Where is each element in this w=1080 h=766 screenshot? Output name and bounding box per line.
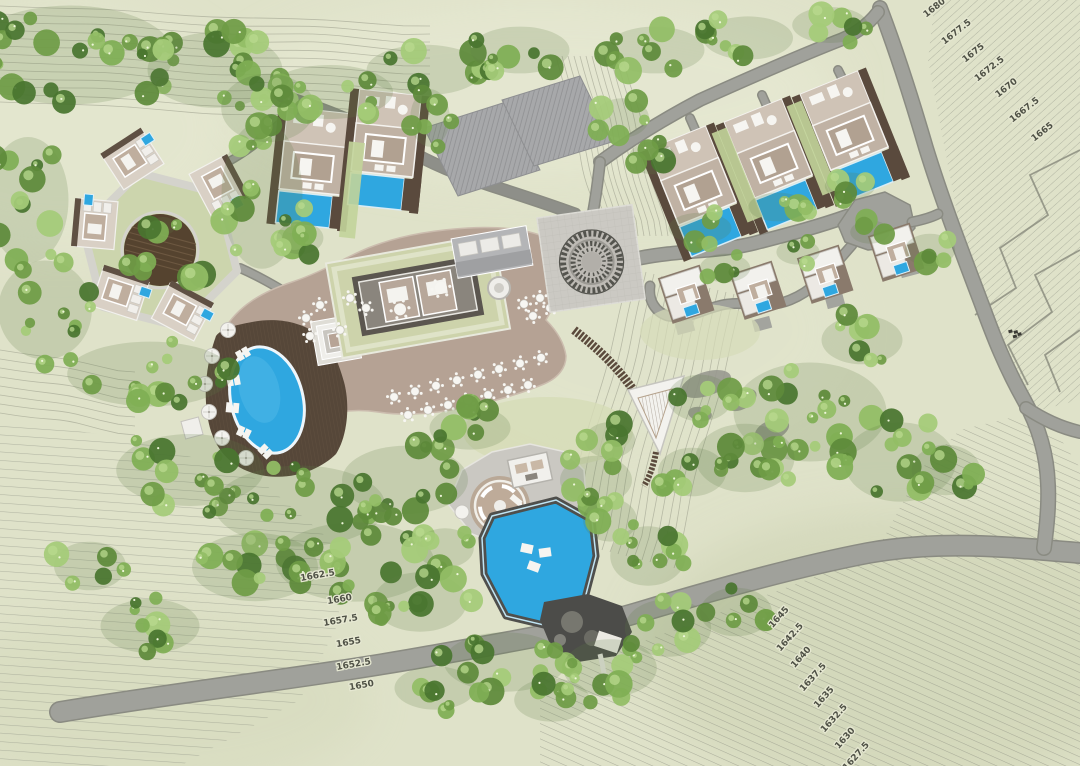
- tree: [203, 505, 217, 519]
- chair: [522, 379, 525, 382]
- dining-table: [424, 406, 432, 414]
- tree: [130, 597, 142, 609]
- tree-highlight: [657, 595, 663, 601]
- tree: [717, 433, 745, 461]
- tree: [655, 593, 672, 610]
- tree-speckle: [72, 361, 74, 363]
- tree: [681, 453, 699, 471]
- tree-highlight: [901, 458, 911, 468]
- tree-speckle: [843, 191, 845, 193]
- tree: [326, 506, 353, 533]
- chair: [310, 313, 313, 316]
- tree: [330, 537, 351, 558]
- tree: [642, 42, 661, 61]
- tree: [649, 16, 675, 42]
- tree: [299, 232, 309, 242]
- tree: [606, 410, 633, 437]
- chair: [517, 306, 520, 309]
- tree: [628, 519, 639, 530]
- tree-highlight: [599, 499, 605, 505]
- tree-highlight: [141, 219, 150, 228]
- tree-speckle: [82, 49, 84, 51]
- tree-speckle: [309, 105, 311, 107]
- chair: [310, 320, 313, 323]
- chair: [514, 367, 517, 370]
- tree-speckle: [251, 499, 253, 501]
- tree-highlight: [852, 344, 860, 352]
- tree-highlight: [103, 44, 113, 54]
- tree-speckle: [195, 383, 197, 385]
- tree: [809, 23, 829, 43]
- tree: [652, 553, 667, 568]
- tree-highlight: [87, 303, 91, 307]
- tree-speckle: [260, 101, 262, 103]
- tree-highlight: [941, 234, 948, 241]
- tree-speckle: [60, 98, 62, 100]
- tree-speckle: [146, 456, 148, 458]
- dining-table: [504, 386, 512, 394]
- tree-highlight: [571, 675, 575, 679]
- chair: [535, 309, 538, 312]
- tree-speckle: [34, 164, 36, 166]
- tree-speckle: [447, 116, 449, 118]
- tree-speckle: [435, 693, 437, 695]
- tree-highlight: [298, 202, 305, 209]
- service-room: [458, 241, 478, 257]
- tree: [43, 82, 58, 97]
- villa-bed-roof: [363, 134, 405, 164]
- chair: [493, 363, 496, 366]
- dining-table: [336, 326, 344, 334]
- tree: [700, 381, 715, 396]
- chair: [513, 391, 516, 394]
- tree-highlight: [292, 564, 300, 572]
- tree: [658, 526, 678, 546]
- tree-highlight: [433, 142, 439, 148]
- tree: [652, 643, 665, 656]
- tree: [246, 140, 257, 151]
- chair: [358, 308, 361, 311]
- tree: [294, 81, 306, 93]
- tree: [844, 17, 862, 35]
- tree-speckle: [200, 557, 202, 559]
- tree: [938, 231, 956, 249]
- chair: [420, 392, 423, 395]
- tree-highlight: [655, 477, 664, 486]
- tree-speckle: [165, 504, 167, 506]
- tree: [95, 568, 112, 585]
- tree-highlight: [409, 436, 419, 446]
- tree-highlight: [813, 6, 823, 16]
- tree-speckle: [341, 496, 343, 498]
- tree-speckle: [677, 484, 679, 486]
- tree: [588, 119, 609, 140]
- tree-highlight: [300, 233, 304, 237]
- tree: [296, 468, 310, 482]
- tree-speckle: [866, 30, 868, 32]
- tree-speckle: [824, 412, 826, 414]
- tree: [773, 436, 785, 448]
- tree-speckle: [133, 599, 135, 601]
- tree: [623, 635, 640, 652]
- chair: [425, 402, 428, 405]
- tree: [561, 478, 585, 502]
- tree-highlight: [698, 23, 705, 30]
- tree: [358, 102, 376, 120]
- tree: [140, 482, 164, 506]
- dining-table: [536, 294, 544, 302]
- tree-highlight: [866, 355, 871, 360]
- tree-speckle: [252, 146, 254, 148]
- tree-highlight: [654, 645, 659, 650]
- tree-speckle: [785, 198, 787, 200]
- tree-highlight: [250, 117, 260, 127]
- tree-highlight: [70, 327, 75, 332]
- tree-highlight: [372, 605, 381, 614]
- tree: [583, 695, 597, 709]
- villa-bed: [299, 158, 313, 176]
- tree-highlight: [800, 202, 806, 208]
- tree: [470, 640, 494, 664]
- tree: [242, 180, 259, 197]
- tree-highlight: [8, 24, 15, 31]
- tree: [627, 555, 639, 567]
- tree-speckle: [600, 505, 602, 507]
- tree: [787, 240, 800, 253]
- chair: [403, 419, 406, 422]
- chair: [347, 290, 350, 293]
- tree-speckle: [660, 646, 662, 648]
- tree-speckle: [677, 606, 679, 608]
- tree-speckle: [239, 31, 241, 33]
- tree-highlight: [299, 470, 305, 476]
- tree: [798, 200, 813, 215]
- tree: [911, 471, 934, 494]
- chair: [417, 385, 420, 388]
- chair: [323, 308, 326, 311]
- tree-speckle: [227, 208, 229, 210]
- arrival-plaza: [537, 205, 645, 312]
- tree-speckle: [496, 673, 498, 675]
- chair: [506, 395, 509, 398]
- tree: [834, 181, 857, 204]
- tree-speckle: [821, 396, 823, 398]
- chair: [371, 309, 374, 312]
- tree-speckle: [570, 454, 572, 456]
- chair: [308, 328, 311, 331]
- tree: [444, 700, 455, 711]
- tree-highlight: [725, 396, 732, 403]
- tree-highlight: [463, 593, 472, 602]
- tree-highlight: [610, 415, 620, 425]
- tree: [162, 354, 173, 365]
- lounger: [233, 403, 240, 413]
- tree-speckle: [844, 403, 846, 405]
- tree: [416, 489, 431, 504]
- tree: [122, 34, 138, 50]
- dining-table: [537, 354, 545, 362]
- tree: [383, 51, 397, 65]
- tree: [781, 471, 796, 486]
- tree: [921, 249, 936, 264]
- tree-speckle: [88, 308, 90, 310]
- tree-highlight: [361, 502, 366, 507]
- tree: [610, 32, 623, 45]
- tree: [779, 196, 790, 207]
- tree: [701, 236, 717, 252]
- tree-speckle: [596, 519, 598, 521]
- tree-highlight: [859, 175, 866, 182]
- tree-highlight: [411, 76, 419, 84]
- tree-speckle: [221, 218, 223, 220]
- villa-bed: [371, 140, 385, 158]
- tree-speckle: [41, 360, 43, 362]
- tree: [230, 244, 242, 256]
- tree: [358, 71, 376, 89]
- tree-speckle: [846, 12, 848, 14]
- tree-speckle: [811, 415, 813, 417]
- tree: [5, 21, 24, 40]
- chair: [482, 376, 485, 379]
- tree-speckle: [803, 265, 805, 267]
- tree-speckle: [735, 618, 737, 620]
- dining-table: [516, 359, 524, 367]
- tree-speckle: [411, 543, 413, 545]
- tree-highlight: [100, 550, 108, 558]
- tree-highlight: [609, 54, 616, 61]
- tree: [146, 361, 158, 373]
- tree-speckle: [413, 438, 415, 440]
- tree-speckle: [329, 555, 331, 557]
- tree-speckle: [470, 76, 472, 78]
- chair: [305, 340, 308, 343]
- chair: [368, 301, 371, 304]
- tree-speckle: [562, 698, 564, 700]
- tree-highlight: [471, 637, 475, 641]
- tree-highlight: [56, 94, 65, 103]
- tree-speckle: [290, 515, 292, 517]
- chair: [315, 332, 318, 335]
- tree-speckle: [456, 573, 458, 575]
- tree-speckle: [440, 495, 442, 497]
- chair: [521, 386, 524, 389]
- tree-speckle: [412, 127, 414, 129]
- chair: [344, 325, 347, 328]
- tree-speckle: [13, 25, 15, 27]
- tree: [245, 112, 272, 139]
- tree: [79, 282, 99, 302]
- chair: [302, 323, 305, 326]
- tree: [424, 681, 444, 701]
- tree: [440, 565, 467, 592]
- tree: [97, 547, 117, 567]
- tree-speckle: [595, 102, 597, 104]
- tree: [538, 54, 564, 80]
- tree: [440, 459, 460, 479]
- tree-highlight: [789, 199, 800, 210]
- tree: [843, 35, 858, 50]
- tree: [528, 47, 540, 59]
- chair: [504, 368, 507, 371]
- chair: [400, 412, 403, 415]
- tree-highlight: [763, 380, 773, 390]
- chair: [533, 385, 536, 388]
- tree-speckle: [840, 432, 842, 434]
- tree: [196, 552, 208, 564]
- tree-highlight: [878, 356, 882, 360]
- tree-speckle: [713, 221, 715, 223]
- chair: [398, 400, 401, 403]
- dining-table: [411, 387, 419, 395]
- chair: [406, 407, 409, 410]
- tree-highlight: [896, 431, 903, 438]
- site-plan-svg: 16801677.516751672.516701667.516651662.5…: [0, 0, 1080, 766]
- tree: [664, 59, 682, 77]
- tree: [759, 376, 785, 402]
- villa-lounger: [314, 183, 324, 190]
- tree-highlight: [144, 486, 153, 495]
- tree: [298, 95, 324, 121]
- tree-speckle: [683, 635, 685, 637]
- tree: [58, 307, 70, 319]
- tree: [11, 191, 29, 209]
- tree: [117, 562, 131, 576]
- tree: [855, 314, 880, 339]
- tree-highlight: [640, 617, 647, 624]
- chair: [500, 362, 503, 365]
- tree-speckle: [538, 682, 540, 684]
- chair: [436, 378, 439, 381]
- tree-highlight: [934, 450, 944, 460]
- tree: [668, 388, 687, 407]
- tree: [585, 508, 611, 534]
- tree: [249, 76, 264, 91]
- tree: [457, 526, 471, 540]
- tree-highlight: [220, 361, 229, 370]
- tree: [589, 95, 614, 120]
- chair: [440, 403, 443, 406]
- tree-speckle: [364, 107, 366, 109]
- tree-highlight: [839, 307, 847, 315]
- lounger: [226, 402, 233, 412]
- tree-highlight: [333, 585, 342, 594]
- tree: [188, 376, 202, 390]
- chair: [526, 317, 529, 320]
- tree-speckle: [395, 514, 397, 516]
- tree-highlight: [639, 36, 644, 41]
- tree-speckle: [142, 95, 144, 97]
- tree-speckle: [712, 37, 714, 39]
- tree-speckle: [151, 363, 153, 365]
- chair: [538, 350, 541, 353]
- tree-highlight: [245, 182, 251, 188]
- tree-highlight: [830, 173, 839, 182]
- chair: [412, 411, 415, 414]
- tree-speckle: [839, 203, 841, 205]
- tree: [171, 219, 182, 230]
- tree-highlight: [287, 510, 291, 514]
- hex-villa: [71, 193, 118, 250]
- chair: [420, 408, 423, 411]
- tree-speckle: [167, 643, 169, 645]
- tree: [405, 432, 433, 460]
- tree-highlight: [207, 479, 214, 486]
- chair: [480, 395, 483, 398]
- dining-table: [529, 312, 537, 320]
- chair: [298, 316, 301, 319]
- tree-speckle: [692, 464, 694, 466]
- chair: [390, 402, 393, 405]
- villa-lounger: [386, 165, 396, 172]
- chair: [538, 290, 541, 293]
- chair: [529, 302, 532, 305]
- float-mat: [539, 547, 552, 558]
- tree-speckle: [715, 209, 717, 211]
- tree: [139, 643, 156, 660]
- chair: [483, 388, 486, 391]
- tree-speckle: [125, 40, 127, 42]
- chair: [503, 383, 506, 386]
- tree-speckle: [746, 392, 748, 394]
- tree-highlight: [141, 646, 148, 653]
- tree-highlight: [820, 403, 827, 410]
- chair: [449, 377, 452, 380]
- chair: [527, 310, 530, 313]
- tree-speckle: [173, 226, 175, 228]
- tree-speckle: [887, 419, 889, 421]
- dining-table: [306, 332, 314, 340]
- tree-highlight: [619, 61, 629, 71]
- dining-table: [444, 401, 452, 409]
- chair: [441, 384, 444, 387]
- tree: [18, 281, 42, 305]
- tree-speckle: [839, 465, 841, 467]
- tree-speckle: [370, 84, 372, 86]
- tree-speckle: [291, 463, 293, 465]
- tree: [266, 461, 280, 475]
- umbrella-pole: [227, 329, 229, 331]
- tree-highlight: [489, 55, 493, 59]
- tree-highlight: [122, 258, 130, 266]
- chair: [315, 309, 318, 312]
- tree-highlight: [174, 397, 180, 403]
- tree: [275, 536, 290, 551]
- tree: [14, 261, 32, 279]
- tree: [731, 249, 743, 261]
- chair: [361, 301, 364, 304]
- tree-highlight: [364, 528, 372, 536]
- tree-highlight: [139, 255, 147, 263]
- tree: [401, 115, 422, 136]
- chair: [525, 309, 528, 312]
- tree-highlight: [859, 318, 869, 328]
- chair: [537, 362, 540, 365]
- tree-highlight: [803, 236, 809, 242]
- dining-table: [495, 365, 503, 373]
- tree: [624, 89, 648, 113]
- tree: [273, 238, 291, 256]
- tree: [560, 450, 580, 470]
- tree-highlight: [67, 578, 73, 584]
- tree: [155, 459, 179, 483]
- chair: [343, 333, 346, 336]
- tree: [341, 80, 354, 93]
- tree: [639, 115, 650, 126]
- dining-table: [362, 304, 370, 312]
- tree-highlight: [563, 453, 571, 461]
- tree-highlight: [190, 378, 196, 384]
- tree-speckle: [317, 542, 319, 544]
